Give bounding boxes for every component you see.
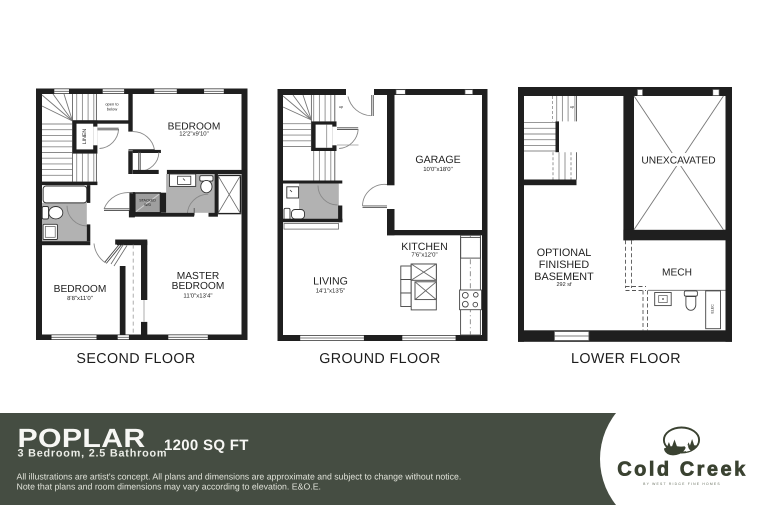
svg-text:1200 SQ FT: 1200 SQ FT xyxy=(164,437,249,454)
svg-text:UNEXCAVATED: UNEXCAVATED xyxy=(641,156,715,167)
svg-text:BY WEST RIDGE FINE HOMES: BY WEST RIDGE FINE HOMES xyxy=(643,482,721,486)
svg-text:12'2"x9'10": 12'2"x9'10" xyxy=(179,131,209,138)
svg-text:GARAGE: GARAGE xyxy=(415,154,460,166)
svg-text:MECH: MECH xyxy=(662,268,692,279)
svg-text:7'6"x12'0": 7'6"x12'0" xyxy=(411,252,437,259)
svg-text:LOWER FLOOR: LOWER FLOOR xyxy=(571,351,681,367)
svg-text:FINISHED: FINISHED xyxy=(539,259,590,271)
svg-text:STACKED: STACKED xyxy=(139,199,156,203)
svg-text:3 Bedroom, 2.5 Bathroom: 3 Bedroom, 2.5 Bathroom xyxy=(18,448,168,460)
svg-text:10'0"x18'0": 10'0"x18'0" xyxy=(423,166,453,173)
svg-text:LIVING: LIVING xyxy=(313,275,348,287)
svg-text:BEDROOM: BEDROOM xyxy=(54,284,107,295)
svg-text:8'8"x11'0": 8'8"x11'0" xyxy=(67,295,93,302)
svg-text:Note that plans and room dimen: Note that plans and room dimensions may … xyxy=(17,482,321,492)
svg-text:below: below xyxy=(107,107,118,112)
svg-text:SECOND FLOOR: SECOND FLOOR xyxy=(76,351,195,367)
svg-text:Cold Creek: Cold Creek xyxy=(617,459,748,481)
svg-text:W/D: W/D xyxy=(144,203,151,207)
svg-text:ELEC: ELEC xyxy=(711,304,715,314)
svg-text:up: up xyxy=(339,105,343,109)
svg-text:292 sf: 292 sf xyxy=(557,282,572,288)
svg-text:14'1"x13'5": 14'1"x13'5" xyxy=(316,288,346,295)
svg-text:11'0"x13'4": 11'0"x13'4" xyxy=(183,293,212,300)
svg-text:BEDROOM: BEDROOM xyxy=(172,281,225,292)
svg-text:KITCHEN: KITCHEN xyxy=(401,241,448,253)
svg-text:All illustrations are artist's: All illustrations are artist's concept. … xyxy=(17,472,462,482)
svg-text:OPTIONAL: OPTIONAL xyxy=(537,247,592,259)
svg-text:GROUND FLOOR: GROUND FLOOR xyxy=(319,351,441,367)
svg-text:up: up xyxy=(570,105,574,109)
svg-text:LINEN: LINEN xyxy=(82,129,88,145)
